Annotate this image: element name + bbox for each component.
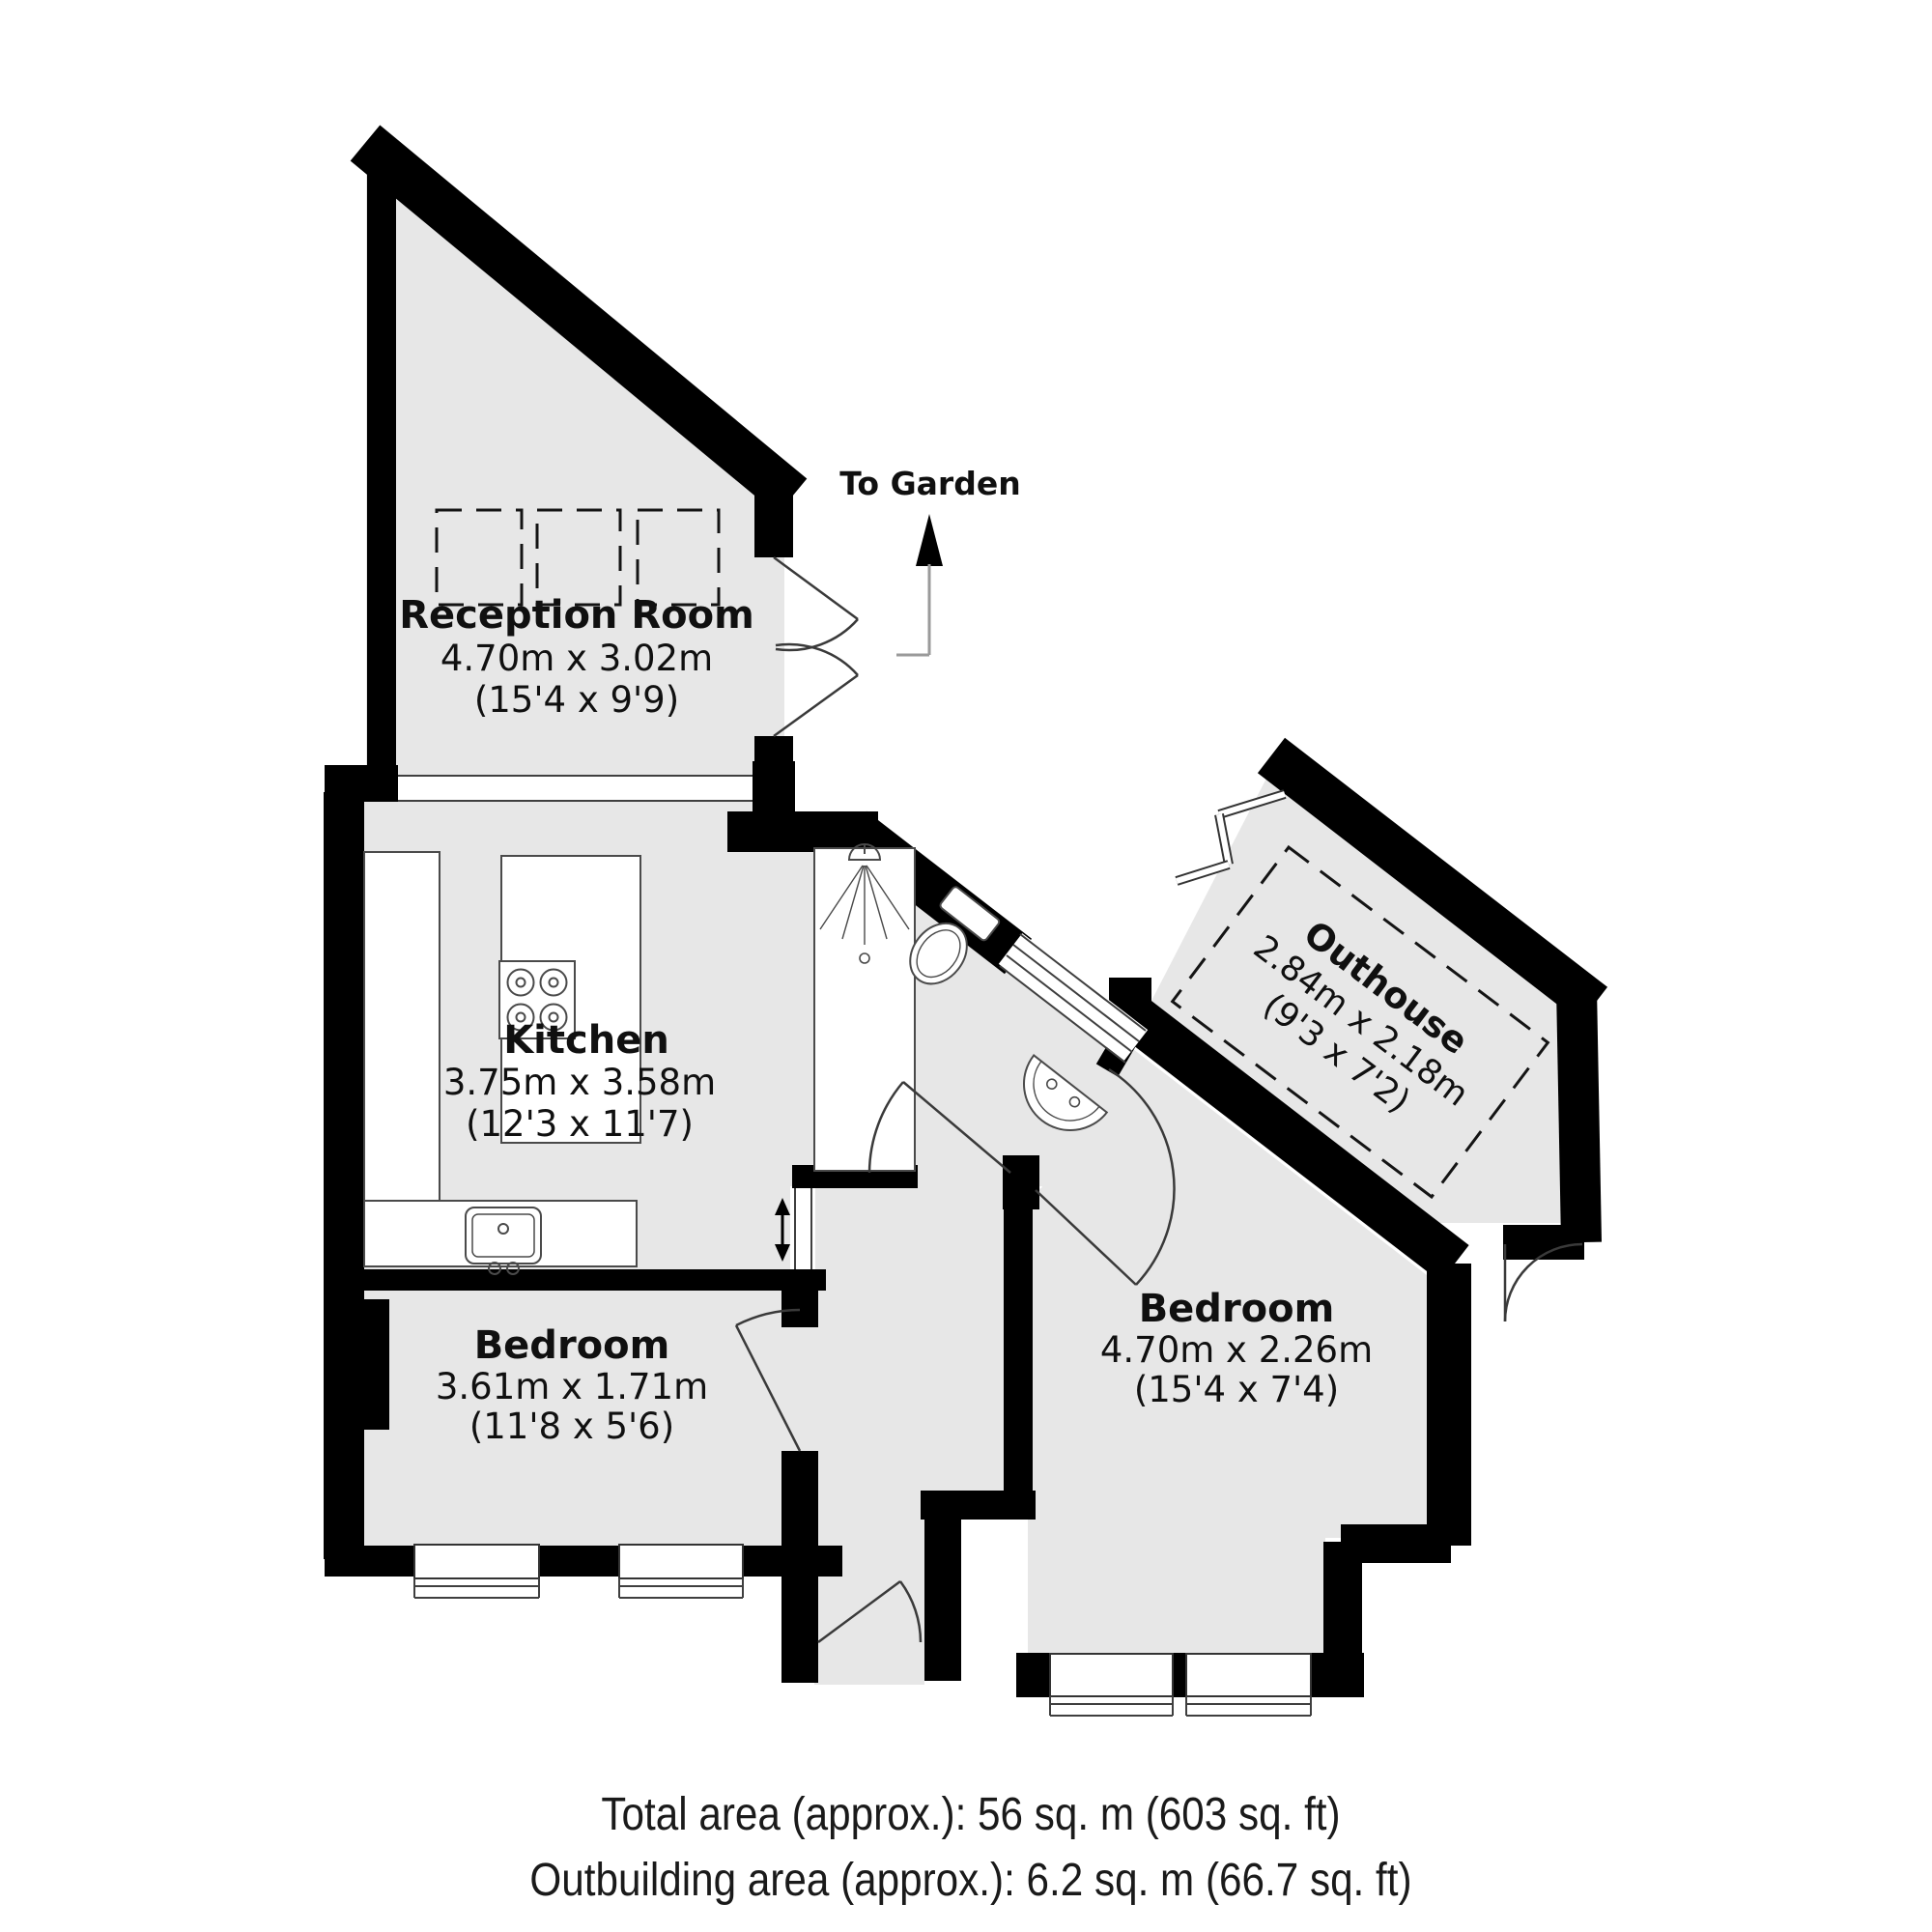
outbuilding-area-caption: Outbuilding area (approx.): 6.2 sq. m (6… [529,1853,1411,1905]
bedroom-right-metric: 4.70m x 2.26m [1100,1329,1373,1371]
kitchen-sink [466,1207,541,1274]
bedroom-left-name: Bedroom [474,1323,670,1368]
kitchen-counter-left [364,852,440,1201]
total-area-caption: Total area (approx.): 56 sq. m (603 sq. … [601,1787,1340,1839]
to-garden-arrow-icon [896,514,943,655]
kitchen-name: Kitchen [503,1018,669,1063]
reception-room-name: Reception Room [399,593,754,638]
bedroom-left-imperial: (11'8 x 5'6) [469,1406,674,1447]
reception-room-metric: 4.70m x 3.02m [440,638,713,679]
floor-plan-drawing: To Garden Reception Room 4.70m x 3.02m (… [0,0,1932,1932]
bedroom-right-window-1 [1050,1654,1173,1716]
reception-kitchen-opening [364,776,754,801]
reception-room-imperial: (15'4 x 9'9) [474,679,679,721]
bedroom-door-block [1003,1155,1039,1209]
bedroom-right-window-2 [1186,1654,1311,1716]
bedroom-right-imperial: (15'4 x 7'4) [1134,1369,1339,1410]
kitchen-hall-doorway [790,1186,815,1275]
to-garden-label: To Garden [839,465,1020,502]
bedroom-left-label: Bedroom 3.61m x 1.71m (11'8 x 5'6) [436,1323,708,1447]
bedroom-left-window-2 [619,1545,743,1598]
floor-plan-page: To Garden Reception Room 4.70m x 3.02m (… [0,0,1932,1932]
bedroom-right-name: Bedroom [1139,1287,1335,1331]
bedroom-left-window-1 [414,1545,539,1598]
bedroom-right-label: Bedroom 4.70m x 2.26m (15'4 x 7'4) [1100,1287,1373,1410]
reception-french-doors [774,557,858,736]
wall-tee-block [753,761,795,815]
kitchen-metric: 3.75m x 3.58m [443,1062,716,1103]
bedroom-left-metric: 3.61m x 1.71m [436,1366,708,1407]
hallway-floor [814,1171,1009,1685]
kitchen-imperial: (12'3 x 11'7) [466,1103,694,1145]
shower-cubicle [814,844,915,1171]
wall-notch [362,1299,389,1430]
